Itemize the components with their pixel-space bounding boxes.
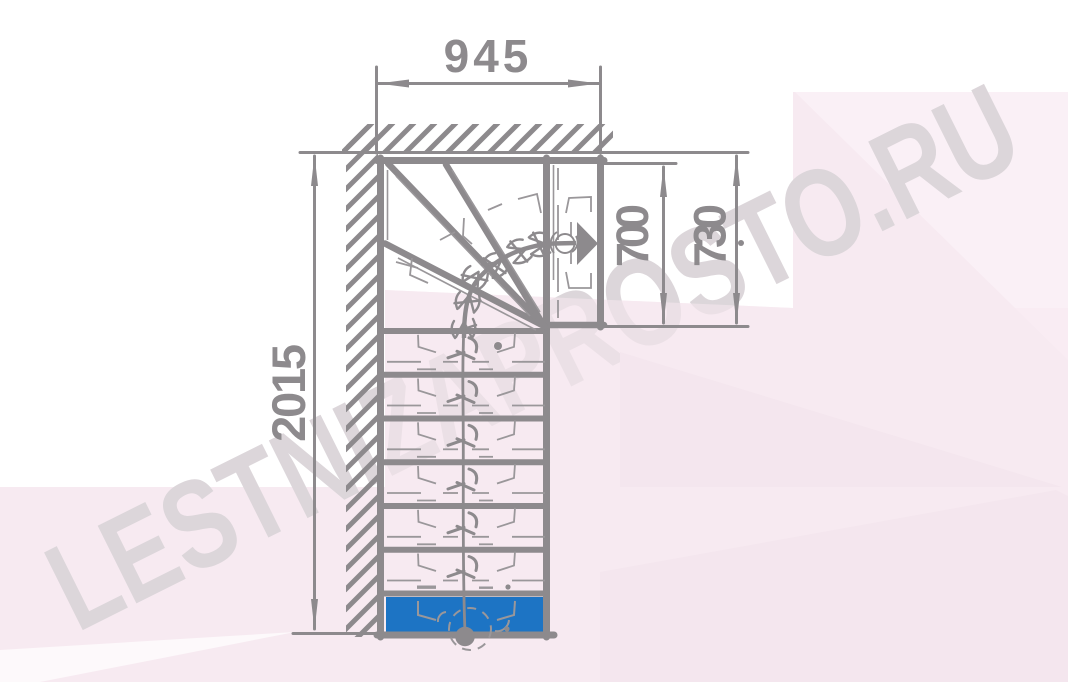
svg-text:945: 945 — [444, 30, 533, 82]
svg-text:730: 730 — [685, 205, 736, 267]
svg-text:700: 700 — [607, 205, 658, 267]
svg-text:2015: 2015 — [262, 345, 315, 442]
